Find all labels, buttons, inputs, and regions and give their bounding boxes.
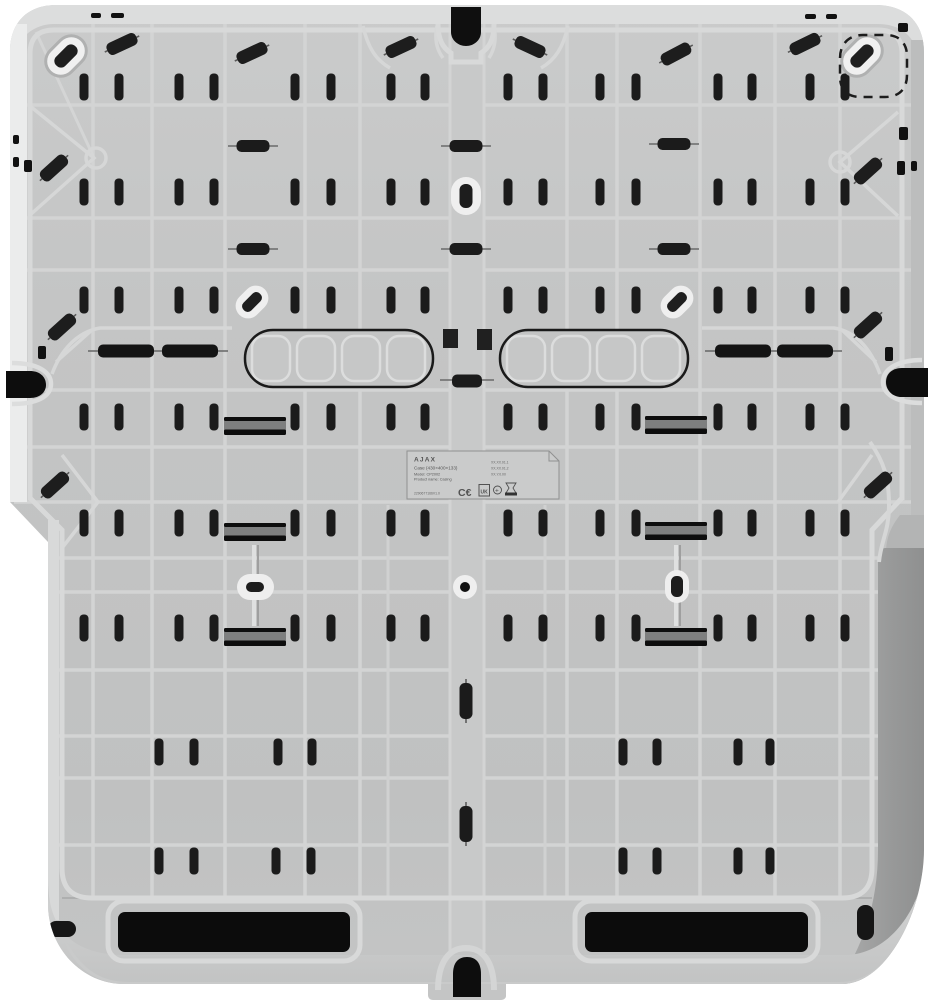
- svg-text:Case (430×400×133): Case (430×400×133): [414, 466, 458, 471]
- svg-text:XX.XX.01.2: XX.XX.01.2: [491, 467, 509, 471]
- svg-text:Product name: Casing: Product name: Casing: [414, 478, 452, 482]
- svg-text:C€: C€: [458, 487, 472, 499]
- svg-text:XX.Y.0.00: XX.Y.0.00: [491, 473, 506, 477]
- svg-text:XX.XX.01.1: XX.XX.01.1: [491, 461, 509, 465]
- svg-text:Model: CP2002: Model: CP2002: [414, 473, 440, 477]
- svg-text:2290677166V1.0: 2290677166V1.0: [414, 492, 440, 496]
- svg-text:AJAX: AJAX: [414, 457, 436, 464]
- svg-text:UK: UK: [481, 490, 489, 496]
- svg-text:+: +: [495, 488, 499, 495]
